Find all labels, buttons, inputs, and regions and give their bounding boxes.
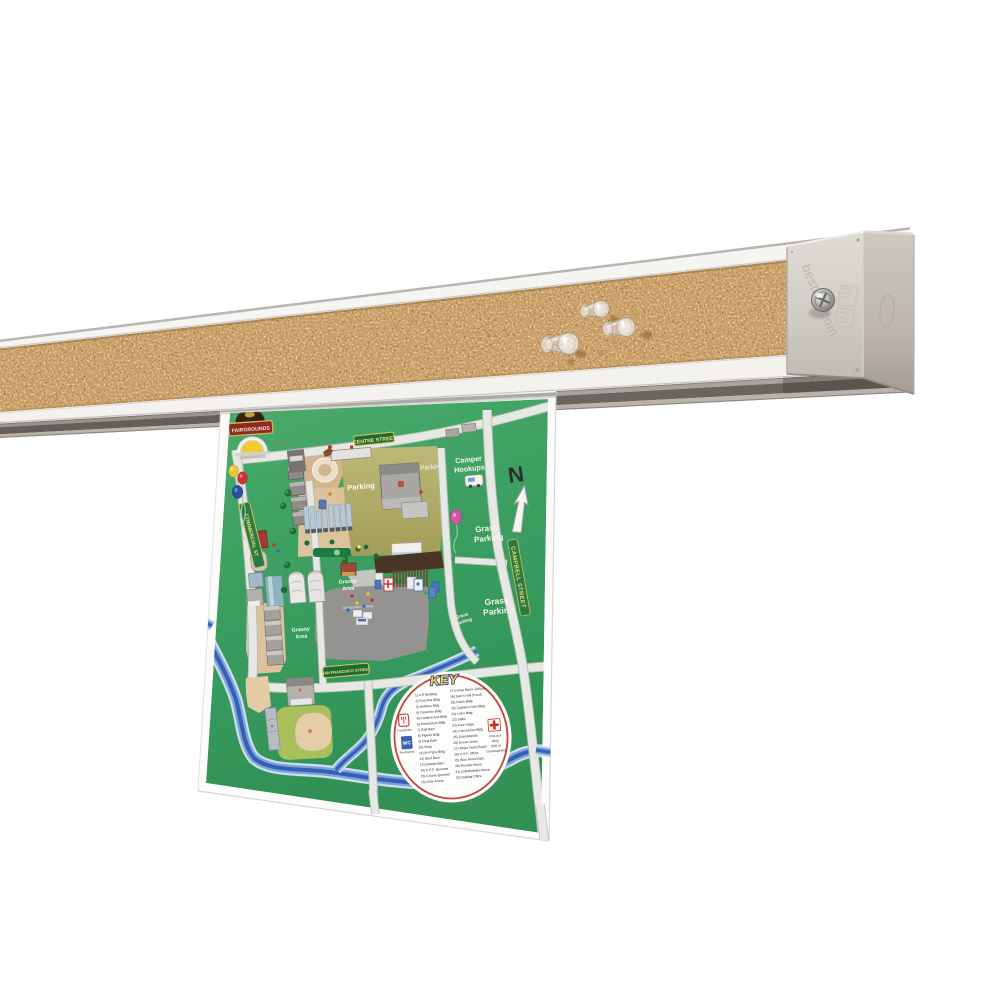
svg-text:Area: Area (342, 585, 355, 592)
svg-text:First Aid: First Aid (489, 734, 501, 739)
svg-text:Area: Area (295, 633, 308, 640)
svg-text:KEY: KEY (429, 671, 459, 688)
svg-text:Bldg: Bldg (492, 739, 499, 743)
svg-text:WC: WC (402, 740, 411, 747)
svg-text:(SW of: (SW of (491, 744, 501, 749)
